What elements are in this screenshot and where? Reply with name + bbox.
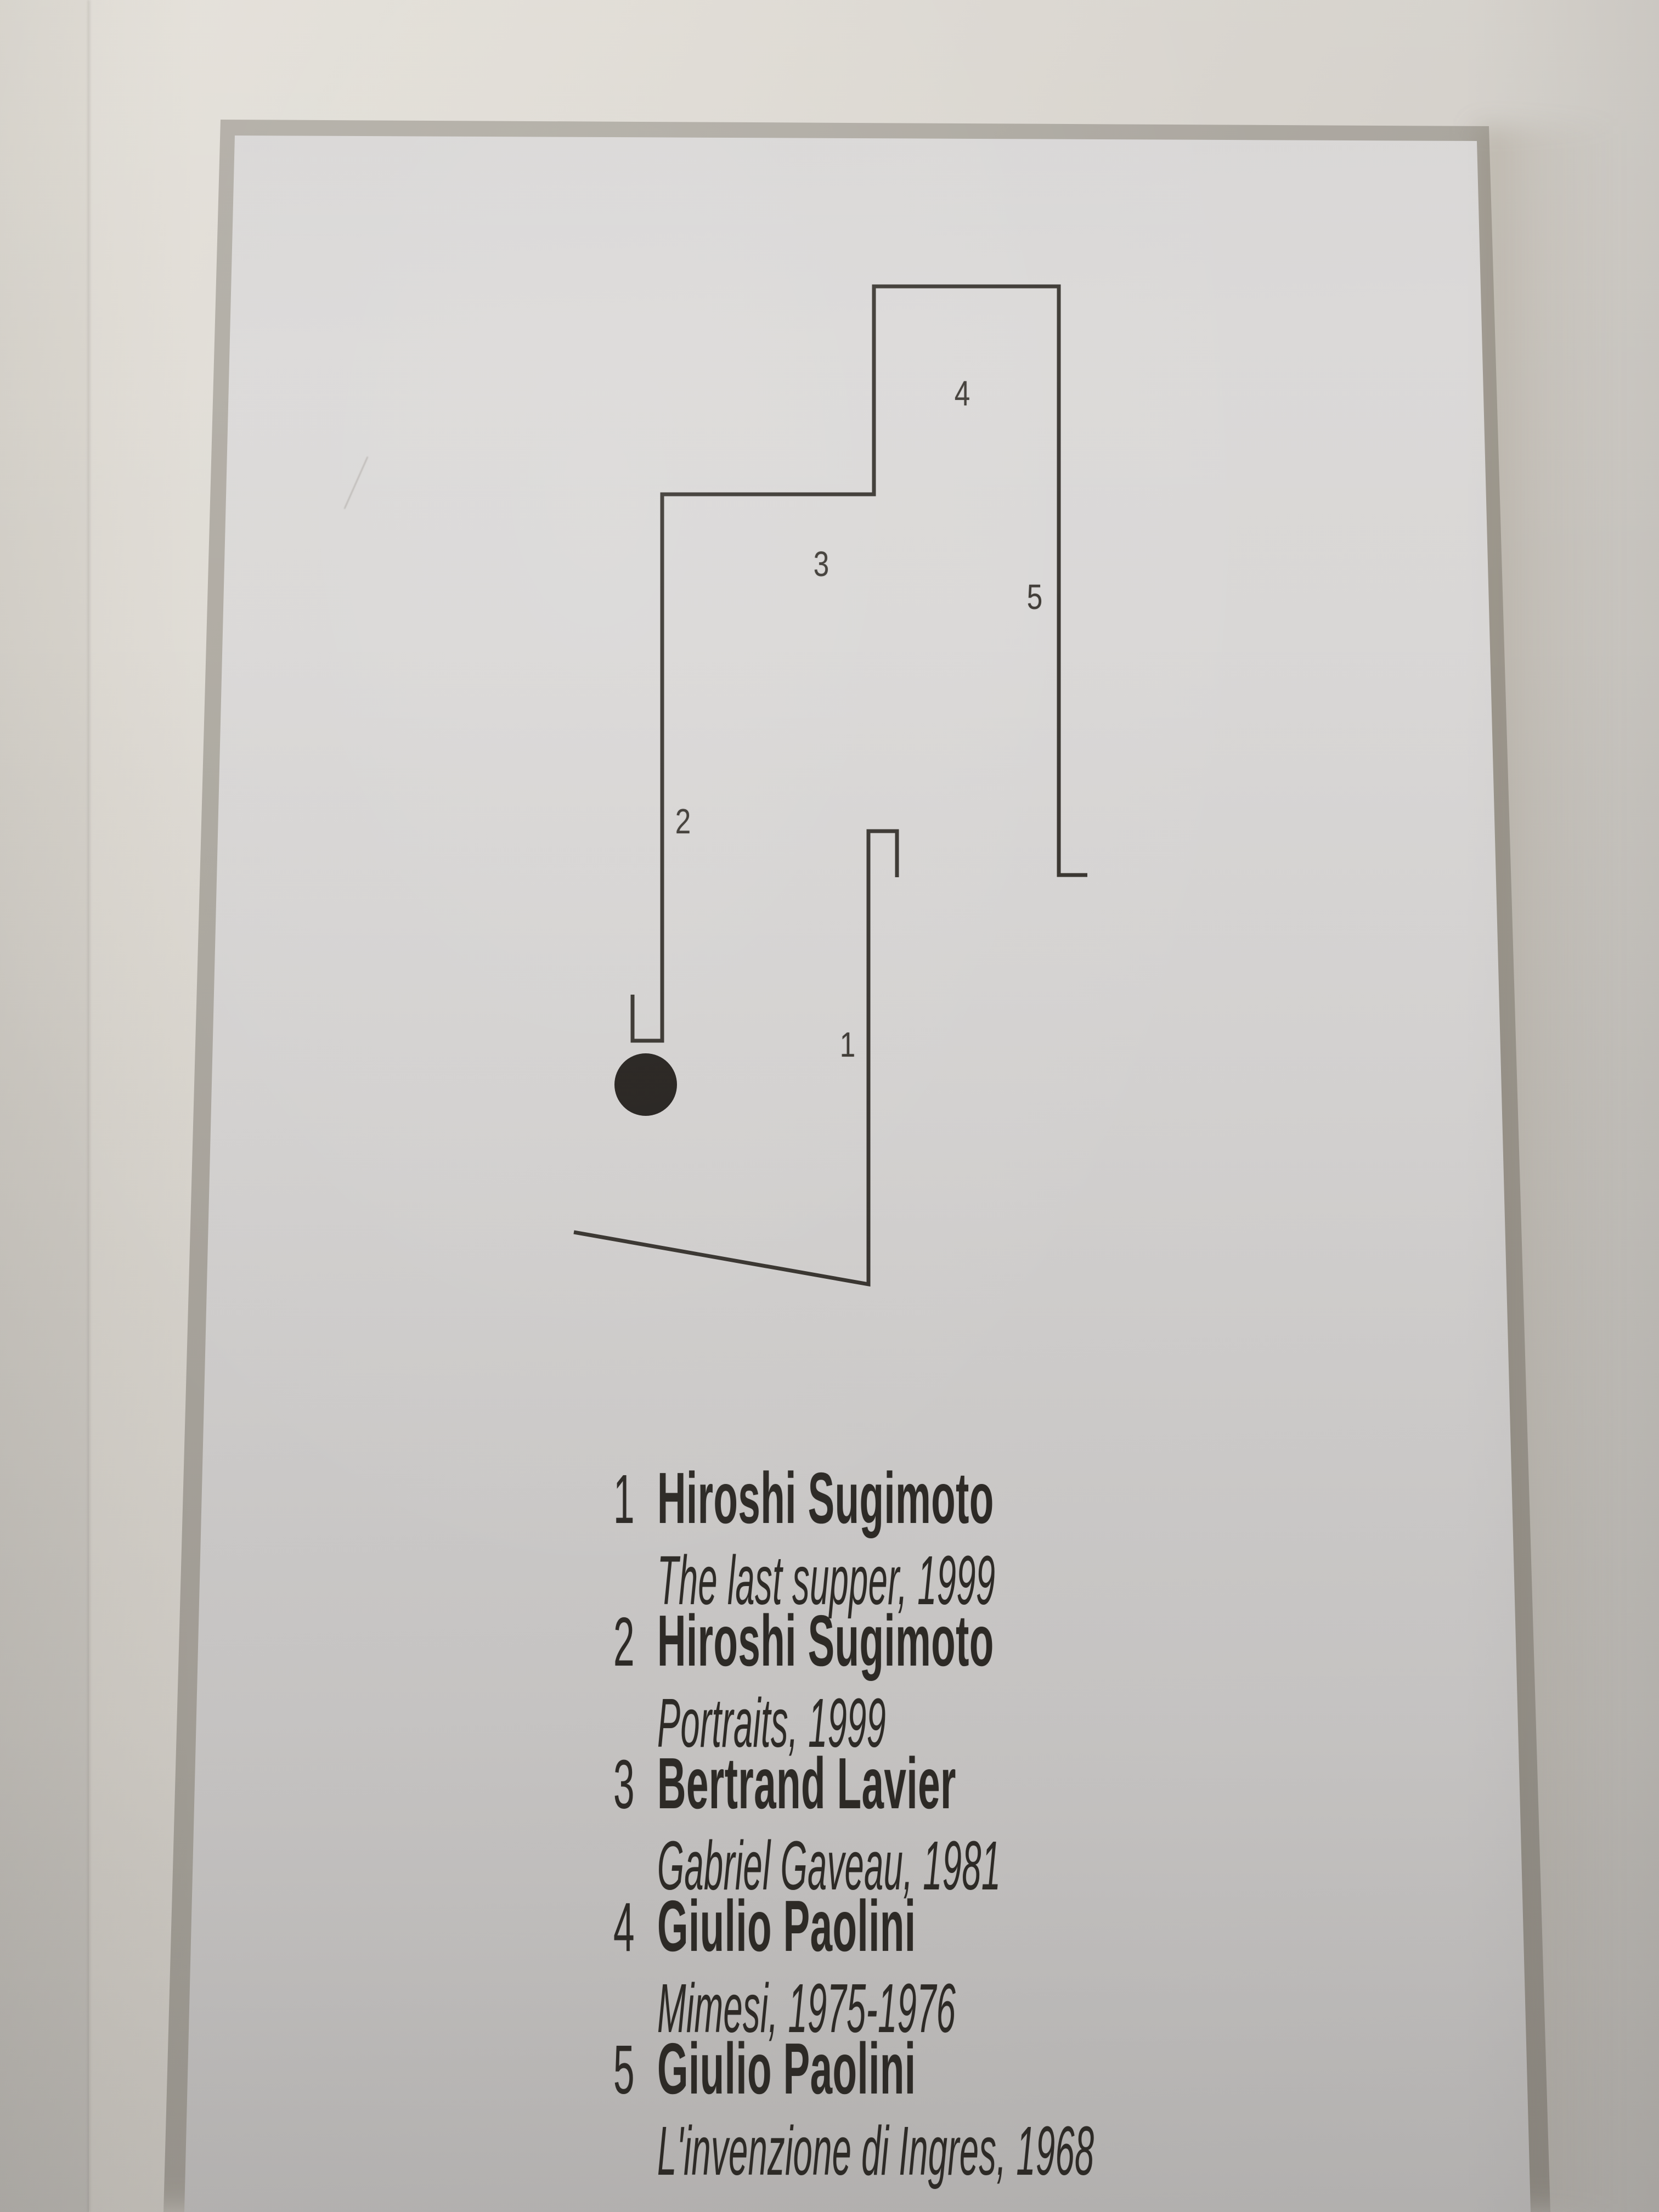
legend-number: 5 bbox=[613, 2030, 657, 2109]
plan-marker-1: 1 bbox=[840, 1026, 855, 1065]
location-dot bbox=[614, 1053, 677, 1116]
artist-name: Bertrand Lavier bbox=[657, 1742, 1345, 1825]
artist-name: Hiroshi Sugimoto bbox=[657, 1457, 1334, 1539]
artist-name: Giulio Paolini bbox=[657, 2028, 1531, 2110]
legend-item-2: 2 Hiroshi Sugimoto Portraits, 1999 bbox=[613, 1600, 1269, 1764]
legend-number: 3 bbox=[613, 1745, 657, 1824]
legend-number: 4 bbox=[613, 1887, 657, 1967]
legend-item-5: 5 Giulio Paolini L'invenzione di Ingres,… bbox=[613, 2028, 1531, 2192]
plan-marker-5: 5 bbox=[1027, 578, 1042, 617]
gallery-wall-photo: 1 2 3 4 5 1 Hiroshi Sugimoto The last su… bbox=[0, 0, 1659, 2212]
legend-item-3: 3 Bertrand Lavier Gabriel Gaveau, 1981 bbox=[613, 1742, 1345, 1907]
legend-item-4: 4 Giulio Paolini Mimesi, 1975-1976 bbox=[613, 1885, 1255, 2050]
plan-marker-4: 4 bbox=[955, 375, 970, 414]
artwork-title: L'invenzione di Ingres, 1968 bbox=[657, 2110, 1531, 2192]
artist-name: Giulio Paolini bbox=[657, 1885, 1255, 1967]
legend-item-1: 1 Hiroshi Sugimoto The last supper, 1999 bbox=[613, 1457, 1334, 1622]
plan-marker-3: 3 bbox=[814, 545, 829, 584]
plan-marker-2: 2 bbox=[675, 803, 691, 842]
floor-plan-outline-rooms-2-3-4-5 bbox=[633, 286, 1087, 1041]
legend-number: 2 bbox=[613, 1602, 657, 1681]
legend-number: 1 bbox=[613, 1459, 657, 1539]
artist-name: Hiroshi Sugimoto bbox=[657, 1600, 1269, 1682]
